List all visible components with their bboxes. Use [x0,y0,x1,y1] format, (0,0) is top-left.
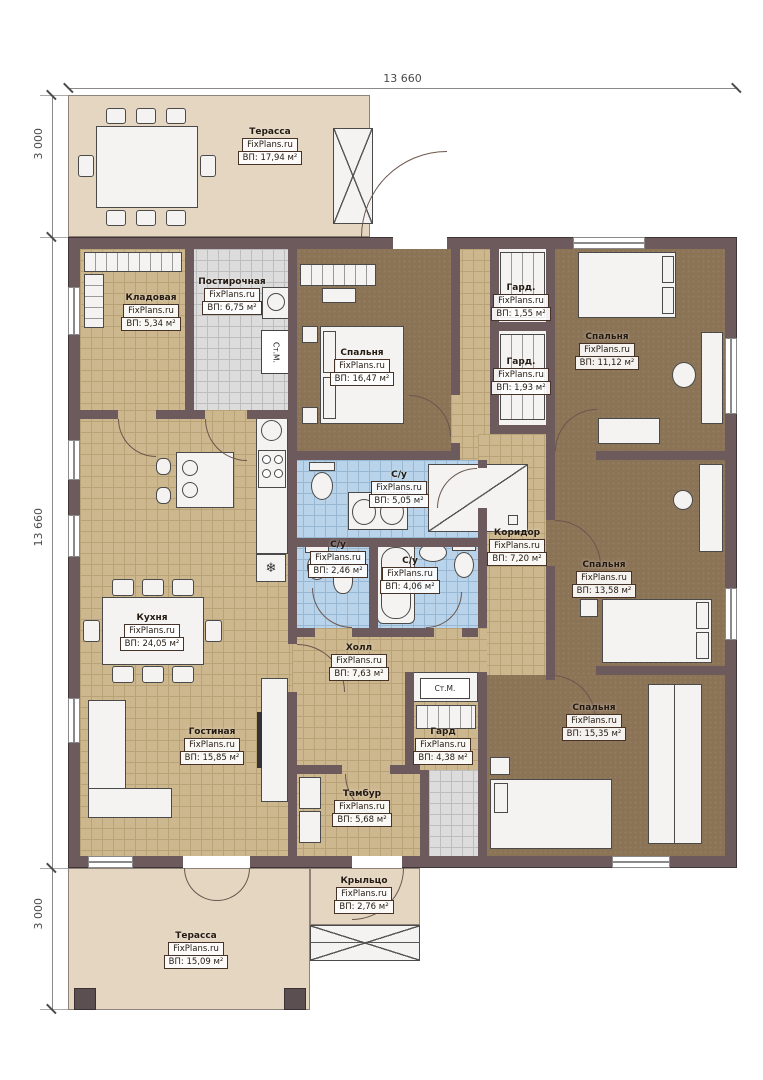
wall-segment [478,460,487,468]
window-symbol [68,440,80,480]
shower-drain-symbol [508,515,518,525]
room-name: Гостиная [189,727,236,737]
fridge-icon: ❄ [256,554,286,582]
room-label-bathroom3: С/у FixPlans.ru ВП: 4,06 м² [368,556,452,594]
room-name: Спальня [582,560,625,570]
brand-watermark: FixPlans.ru [204,288,260,302]
dining-table-symbol [96,126,198,208]
top-dimension-label: 13 660 [68,72,737,85]
sink-bowl-symbol [182,482,198,498]
room-label-kladovaya: Кладовая FixPlans.ru ВП: 5,34 м² [112,293,190,331]
chair-symbol [136,210,156,226]
top-dimension-line [68,88,737,89]
brand-watermark: FixPlans.ru [168,942,224,956]
wall-segment [288,692,297,856]
desk-symbol [699,464,723,552]
wall-segment [596,666,725,675]
door-gap [183,856,250,868]
room-label-kitchen: Кухня FixPlans.ru ВП: 24,05 м² [108,613,196,651]
closet-symbol [299,811,321,843]
window-symbol [725,338,737,414]
wall-segment [490,322,546,331]
brand-watermark: FixPlans.ru [124,624,180,638]
wall-segment [451,249,460,395]
room-name: С/у [391,470,407,480]
left-dimension-label-middle: 13 660 [32,508,45,547]
nightstand-symbol [302,326,318,343]
room-name: Кладовая [125,293,176,303]
sink-bowl-symbol [261,420,282,441]
shelving-symbol [416,705,476,729]
wall-segment [462,628,478,637]
room-name: Тамбур [343,789,381,799]
room-area: ВП: 17,94 м² [238,151,303,165]
chair-symbol [142,666,164,683]
room-name: Гард. [507,357,536,367]
room-label-hall: Холл FixPlans.ru ВП: 7,63 м² [317,643,401,681]
room-area: ВП: 5,34 м² [121,317,180,331]
bar-stool-symbol [156,487,171,504]
room-area: ВП: 7,63 м² [329,667,388,681]
stool-symbol [673,490,693,510]
chair-symbol [166,108,186,124]
room-name: Терасса [175,931,217,941]
brand-watermark: FixPlans.ru [566,714,622,728]
pillow-symbol [696,632,709,659]
shelving-symbol [84,252,182,272]
room-area: ВП: 15,85 м² [180,751,245,765]
brand-watermark: FixPlans.ru [415,738,471,752]
room-label-tambour: Тамбур FixPlans.ru ВП: 5,68 м² [320,789,404,827]
window-symbol [725,588,737,640]
room-name: Спальня [572,703,615,713]
chair-symbol [200,155,216,177]
room-label-bathroom2: С/у FixPlans.ru ВП: 2,46 м² [300,540,376,578]
wall-segment [247,410,297,419]
door-arc [361,151,447,237]
chair-symbol [83,620,100,642]
closet-symbol [300,264,376,286]
chair-symbol [672,362,696,388]
window-symbol [88,856,133,868]
room-name: Гард. [507,283,536,293]
chair-symbol [172,579,194,596]
wall-segment [297,628,315,637]
window-symbol [612,856,670,868]
pillow-symbol [662,287,674,314]
room-label-porch: Крыльцо FixPlans.ru ВП: 2,76 м² [318,876,410,914]
brand-watermark: FixPlans.ru [123,304,179,318]
dresser-symbol [598,418,660,444]
chair-symbol [78,155,94,177]
room-label-terrace-top: Терасса FixPlans.ru ВП: 17,94 м² [222,127,318,165]
room-area: ВП: 13,58 м² [572,584,637,598]
chair-symbol [106,108,126,124]
room-label-wardrobe3: Гард FixPlans.ru ВП: 4,38 м² [408,727,478,765]
room-area: ВП: 4,38 м² [413,751,472,765]
room-label-bedroom2: Спальня FixPlans.ru ВП: 11,12 м² [563,332,651,370]
wall-segment [288,419,297,644]
closet-symbol [299,777,321,809]
room-label-corridor: Коридор FixPlans.ru ВП: 7,20 м² [480,528,554,566]
bar-stool-symbol [156,458,171,475]
room-label-bathroom1: С/у FixPlans.ru ВП: 5,05 м² [357,470,441,508]
room-name: Коридор [494,528,540,538]
toilet-tank-symbol [309,462,335,471]
wall-segment [390,765,420,774]
left-dimension-label-bottom: 3 000 [32,898,45,930]
window-symbol [68,287,80,335]
room-name: С/у [330,540,346,550]
wall-segment [478,672,487,680]
brand-watermark: FixPlans.ru [579,343,635,357]
chair-symbol [106,210,126,226]
wall-segment [546,566,555,680]
pillow-symbol [494,783,508,813]
toilet-symbol [311,472,333,500]
wall-segment [490,249,499,434]
brand-watermark: FixPlans.ru [336,887,392,901]
room-area: ВП: 24,05 м² [120,637,185,651]
room-label-terrace-bottom: Терасса FixPlans.ru ВП: 15,09 м² [148,931,244,969]
room-area: ВП: 5,68 м² [332,813,391,827]
wall-segment [478,680,487,856]
wall-segment [297,451,451,460]
brand-watermark: FixPlans.ru [576,571,632,585]
room-name: Холл [346,643,372,653]
chair-symbol [172,666,194,683]
nightstand-symbol [490,757,510,775]
door-gap [352,856,402,868]
room-area: ВП: 2,46 м² [308,564,367,578]
chair-symbol [112,579,134,596]
room-area: ВП: 4,06 м² [380,580,439,594]
wall-segment [352,628,434,637]
chair-symbol [166,210,186,226]
room-label-wardrobe2: Гард. FixPlans.ru ВП: 1,93 м² [487,357,555,395]
washing-machine-symbol: Ст.М. [261,330,291,374]
room-label-postirochnaya: Постирочная FixPlans.ru ВП: 6,75 м² [180,277,284,315]
brand-watermark: FixPlans.ru [331,654,387,668]
dresser-symbol [322,288,356,303]
door-gap [393,237,447,249]
room-area: ВП: 5,05 м² [369,494,428,508]
wall-segment [297,765,342,774]
room-name: Спальня [340,348,383,358]
room-area: ВП: 7,20 м² [487,552,546,566]
chair-symbol [112,666,134,683]
window-symbol [68,698,80,743]
room-name: Кухня [136,613,167,623]
room-name: Постирочная [198,277,265,287]
room-area: ВП: 1,55 м² [491,307,550,321]
chair-symbol [136,108,156,124]
room-label-wardrobe1: Гард. FixPlans.ru ВП: 1,55 м² [487,283,555,321]
tv-unit-symbol [261,678,288,802]
brand-watermark: FixPlans.ru [371,481,427,495]
brand-watermark: FixPlans.ru [489,539,545,553]
window-symbol [68,515,80,557]
room-area: ВП: 2,76 м² [334,900,393,914]
wall-segment [80,410,118,419]
brand-watermark: FixPlans.ru [334,359,390,373]
sofa-symbol [88,788,172,818]
room-name: С/у [402,556,418,566]
wall-segment [451,443,460,460]
brand-watermark: FixPlans.ru [493,294,549,308]
pillow-symbol [696,602,709,629]
brand-watermark: FixPlans.ru [382,567,438,581]
room-label-bedroom1: Спальня FixPlans.ru ВП: 16,47 м² [318,348,406,386]
wall-segment [490,425,546,434]
washing-machine-symbol: Ст.М. [420,678,470,699]
desk-symbol [701,332,723,424]
brand-watermark: FixPlans.ru [310,551,366,565]
room-name: Крыльцо [340,876,387,886]
room-area: ВП: 15,09 м² [164,955,229,969]
left-dimension-line [52,95,53,1010]
brand-watermark: FixPlans.ru [334,800,390,814]
room-name: Гард [430,727,456,737]
steps-symbol [310,925,420,961]
room-area: ВП: 1,93 м² [491,381,550,395]
room-area: ВП: 11,12 м² [575,356,640,370]
room-area: ВП: 6,75 м² [202,301,261,315]
pillow-symbol [662,256,674,283]
sink-bowl-symbol [182,460,198,476]
left-dimension-label-top: 3 000 [32,128,45,160]
room-label-living: Гостиная FixPlans.ru ВП: 15,85 м² [166,727,258,765]
wall-segment [478,508,487,628]
nightstand-symbol [302,407,318,424]
wall-segment [420,770,429,856]
column-symbol [284,988,306,1010]
room-name: Терасса [249,127,291,137]
room-area: ВП: 15,35 м² [562,727,627,741]
room-label-bedroom3: Спальня FixPlans.ru ВП: 13,58 м² [560,560,648,598]
nightstand-symbol [580,599,598,617]
window-symbol [573,237,645,249]
toilet-symbol [454,552,474,578]
column-symbol [74,988,96,1010]
stove-symbol [258,450,286,488]
chair-symbol [205,620,222,642]
room-name: Спальня [585,332,628,342]
brand-watermark: FixPlans.ru [184,738,240,752]
wall-segment [288,249,297,419]
chair-symbol [142,579,164,596]
wardrobe-symbol [648,684,702,844]
room-area: ВП: 16,47 м² [330,372,395,386]
brand-watermark: FixPlans.ru [493,368,549,382]
shelving-symbol [84,274,104,328]
brand-watermark: FixPlans.ru [242,138,298,152]
floor-plan: 13 660 3 000 13 660 3 000 Ст.М. [0,0,763,1080]
wall-segment [596,451,725,460]
wall-segment [156,410,205,419]
step-edge [310,942,420,943]
wardrobe-divider [674,684,675,844]
bed-symbol [490,779,612,849]
room-label-bedroom4: Спальня FixPlans.ru ВП: 15,35 м² [548,703,640,741]
